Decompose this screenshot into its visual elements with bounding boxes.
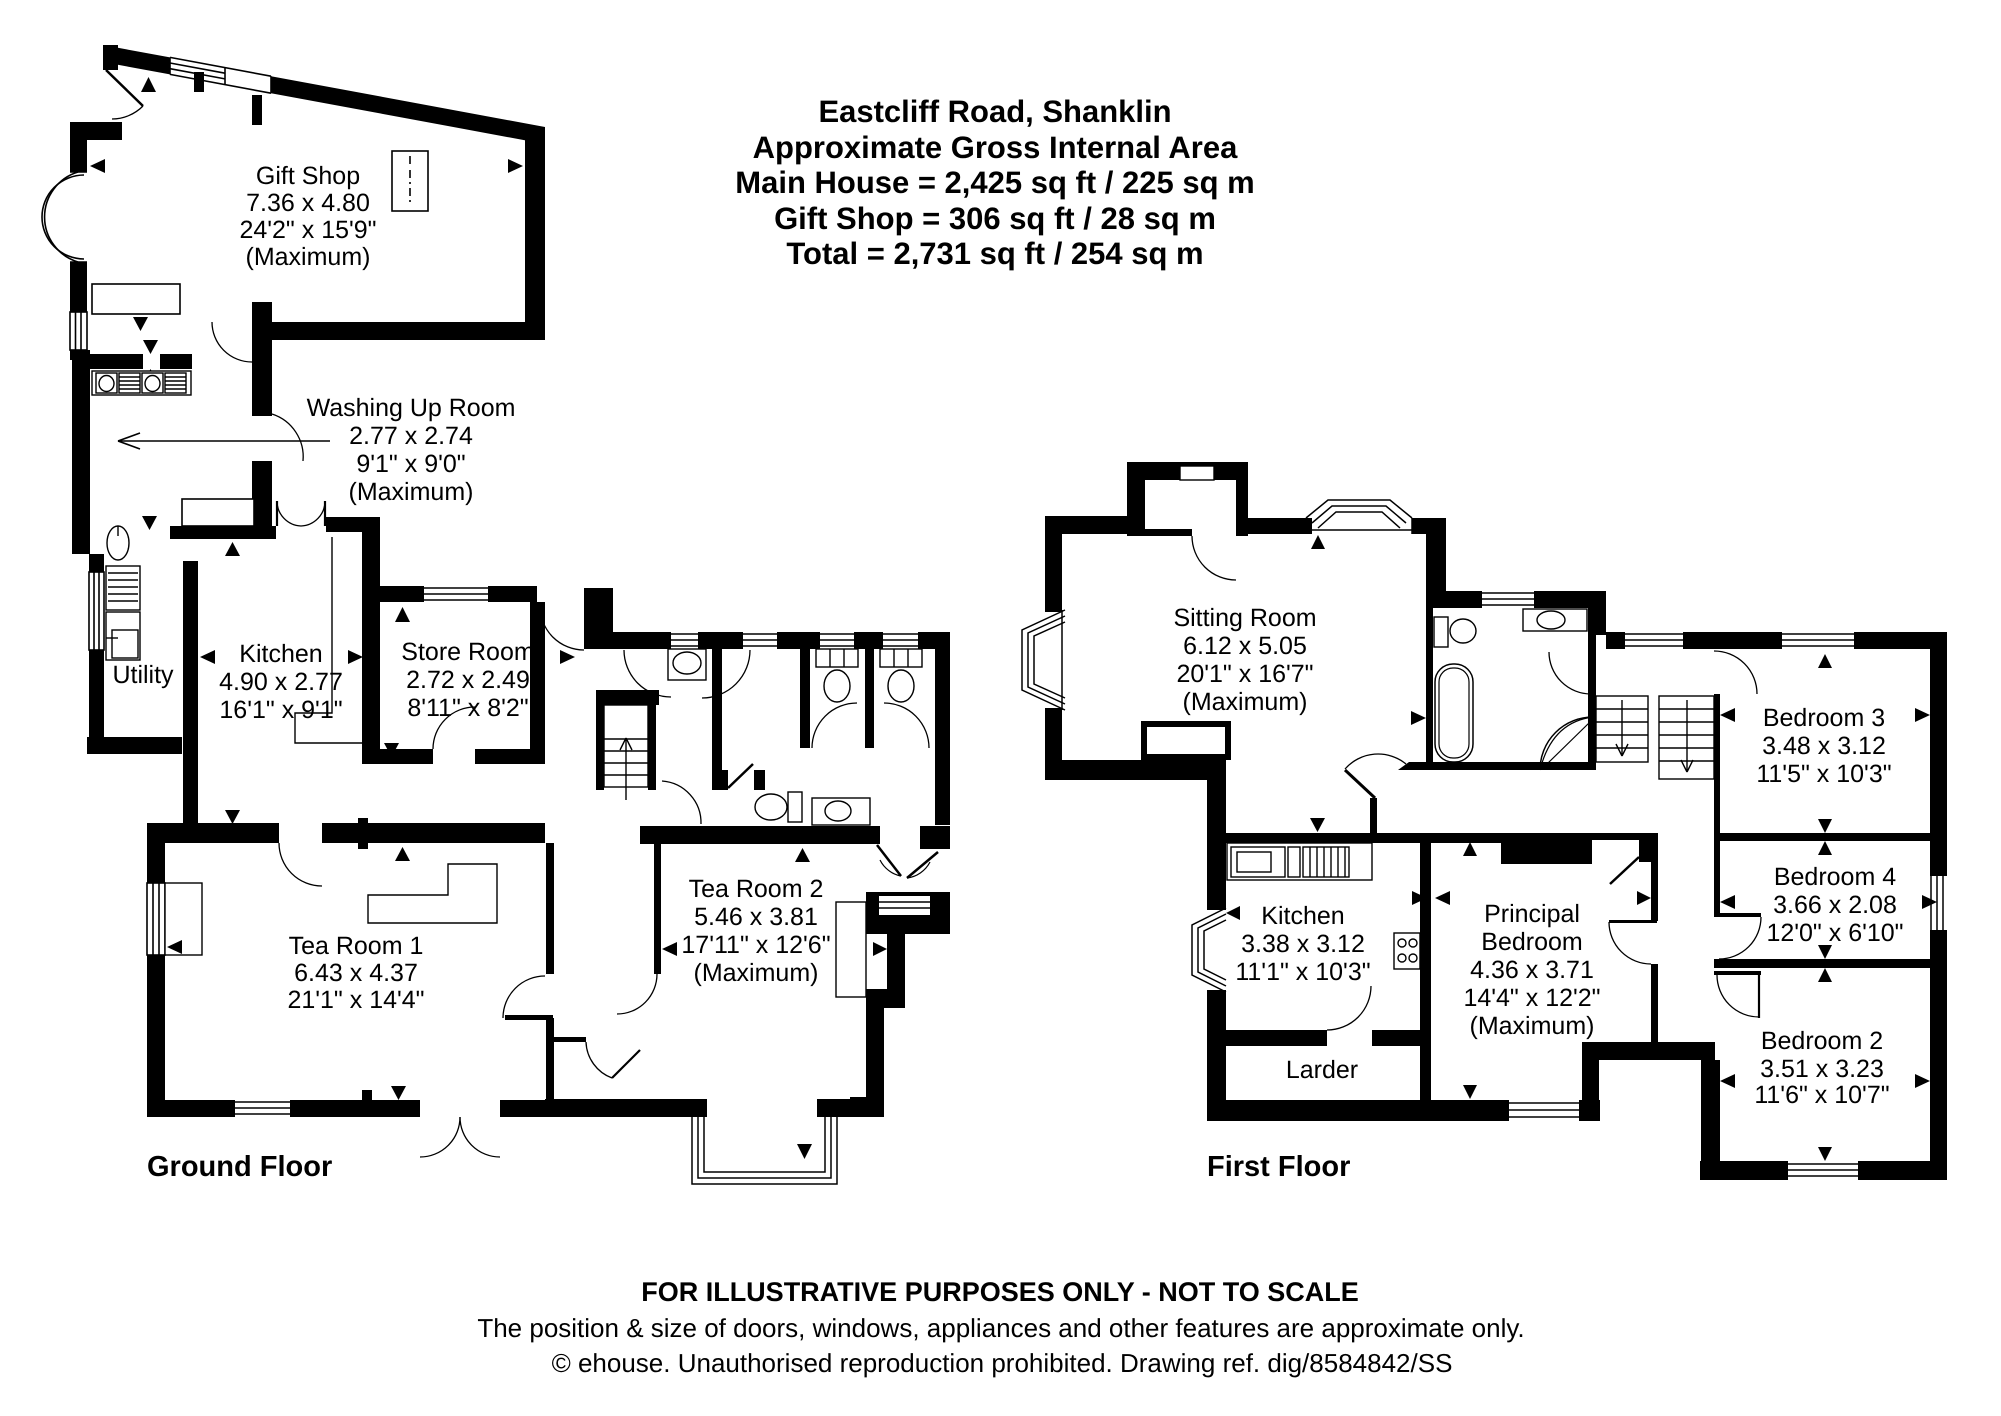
svg-text:(Maximum): (Maximum) bbox=[246, 243, 371, 271]
svg-text:Principal: Principal bbox=[1484, 900, 1580, 928]
svg-text:(Maximum): (Maximum) bbox=[1470, 1012, 1595, 1040]
svg-text:Bedroom 2: Bedroom 2 bbox=[1761, 1027, 1883, 1055]
svg-text:First Floor: First Floor bbox=[1207, 1151, 1350, 1183]
svg-text:Kitchen: Kitchen bbox=[239, 640, 322, 668]
svg-text:9'1" x 9'0": 9'1" x 9'0" bbox=[356, 450, 465, 478]
svg-text:3.51 x 3.23: 3.51 x 3.23 bbox=[1760, 1055, 1884, 1083]
svg-text:Approximate Gross Internal Are: Approximate Gross Internal Area bbox=[753, 130, 1238, 165]
svg-text:12'0" x 6'10": 12'0" x 6'10" bbox=[1766, 919, 1903, 947]
svg-text:3.48 x 3.12: 3.48 x 3.12 bbox=[1762, 732, 1886, 760]
svg-text:Store Room: Store Room bbox=[401, 638, 534, 666]
svg-text:(Maximum): (Maximum) bbox=[1183, 688, 1308, 716]
svg-text:3.38 x 3.12: 3.38 x 3.12 bbox=[1241, 930, 1365, 958]
svg-text:FOR ILLUSTRATIVE PURPOSES ONLY: FOR ILLUSTRATIVE PURPOSES ONLY - NOT TO … bbox=[641, 1277, 1359, 1307]
svg-text:Main House = 2,425 sq ft / 225: Main House = 2,425 sq ft / 225 sq m bbox=[735, 165, 1254, 200]
svg-text:4.90 x 2.77: 4.90 x 2.77 bbox=[219, 668, 343, 696]
svg-text:Eastcliff Road, Shanklin: Eastcliff Road, Shanklin bbox=[818, 94, 1171, 129]
svg-text:Bedroom 4: Bedroom 4 bbox=[1774, 863, 1896, 891]
svg-text:Washing Up Room: Washing Up Room bbox=[307, 394, 516, 422]
svg-text:11'1" x 10'3": 11'1" x 10'3" bbox=[1235, 958, 1370, 986]
svg-text:2.77 x 2.74: 2.77 x 2.74 bbox=[349, 422, 473, 450]
svg-text:7.36 x 4.80: 7.36 x 4.80 bbox=[246, 189, 370, 217]
svg-text:© ehouse. Unauthorised reprodu: © ehouse. Unauthorised reproduction proh… bbox=[552, 1348, 1453, 1378]
svg-text:2.72 x 2.49: 2.72 x 2.49 bbox=[406, 666, 530, 694]
svg-text:Ground Floor: Ground Floor bbox=[147, 1151, 332, 1183]
svg-text:Sitting Room: Sitting Room bbox=[1173, 604, 1316, 632]
svg-text:6.12 x 5.05: 6.12 x 5.05 bbox=[1183, 632, 1307, 660]
svg-text:21'1" x 14'4": 21'1" x 14'4" bbox=[287, 986, 424, 1014]
svg-text:16'1" x 9'1": 16'1" x 9'1" bbox=[219, 696, 342, 724]
svg-text:20'1" x 16'7": 20'1" x 16'7" bbox=[1176, 660, 1313, 688]
svg-text:(Maximum): (Maximum) bbox=[349, 478, 474, 506]
svg-text:Tea Room 1: Tea Room 1 bbox=[289, 932, 424, 960]
svg-text:14'4" x 12'2": 14'4" x 12'2" bbox=[1463, 984, 1600, 1012]
svg-text:Gift Shop: Gift Shop bbox=[256, 162, 360, 190]
svg-text:8'11" x 8'2": 8'11" x 8'2" bbox=[407, 694, 528, 722]
svg-text:Bedroom: Bedroom bbox=[1481, 928, 1582, 956]
svg-text:Tea Room 2: Tea Room 2 bbox=[689, 875, 824, 903]
svg-text:6.43 x 4.37: 6.43 x 4.37 bbox=[294, 959, 418, 987]
svg-text:Utility: Utility bbox=[112, 661, 174, 689]
svg-text:11'5" x 10'3": 11'5" x 10'3" bbox=[1756, 760, 1891, 788]
svg-text:Bedroom 3: Bedroom 3 bbox=[1763, 704, 1885, 732]
svg-text:(Maximum): (Maximum) bbox=[694, 959, 819, 987]
svg-text:5.46 x 3.81: 5.46 x 3.81 bbox=[694, 903, 818, 931]
svg-text:3.66 x 2.08: 3.66 x 2.08 bbox=[1773, 891, 1897, 919]
svg-text:Larder: Larder bbox=[1286, 1056, 1358, 1084]
svg-text:11'6" x 10'7": 11'6" x 10'7" bbox=[1754, 1081, 1889, 1109]
svg-text:17'11" x 12'6": 17'11" x 12'6" bbox=[681, 931, 830, 959]
svg-text:The position & size of doors,: The position & size of doors, windows, a… bbox=[477, 1313, 1524, 1343]
svg-text:Total = 2,731 sq ft / 254 sq m: Total = 2,731 sq ft / 254 sq m bbox=[786, 236, 1203, 271]
svg-text:4.36 x 3.71: 4.36 x 3.71 bbox=[1470, 956, 1594, 984]
svg-text:Kitchen: Kitchen bbox=[1261, 902, 1344, 930]
svg-text:Gift Shop = 306 sq ft / 28 sq: Gift Shop = 306 sq ft / 28 sq m bbox=[774, 201, 1216, 236]
svg-text:24'2" x 15'9": 24'2" x 15'9" bbox=[239, 216, 376, 244]
